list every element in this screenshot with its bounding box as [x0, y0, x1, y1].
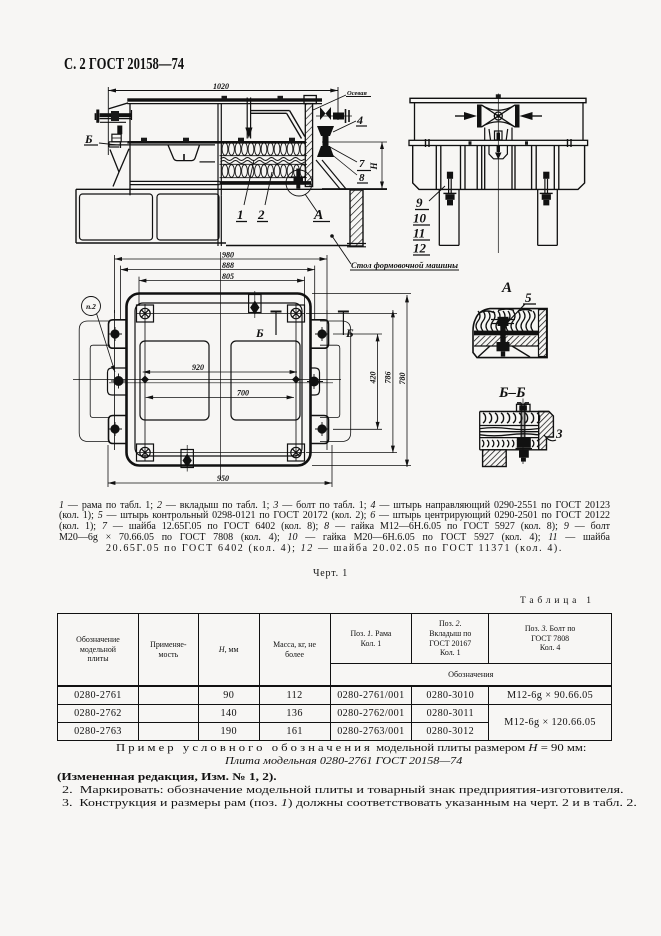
svg-text:950: 950: [217, 474, 229, 483]
svg-text:10: 10: [413, 211, 427, 226]
svg-text:Осевая: Осевая: [347, 90, 367, 97]
svg-text:1020: 1020: [213, 82, 229, 91]
svg-text:Б: Б: [84, 132, 93, 146]
svg-text:786: 786: [384, 372, 393, 384]
svg-text:700: 700: [237, 389, 249, 398]
svg-text:420: 420: [369, 372, 378, 385]
svg-text:1: 1: [237, 207, 244, 222]
svg-text:п.2: п.2: [86, 302, 96, 311]
svg-text:11: 11: [413, 226, 425, 241]
svg-text:Н: Н: [369, 162, 379, 171]
svg-text:7: 7: [359, 158, 365, 170]
svg-text:Стол формовочной машины: Стол формовочной машины: [351, 261, 458, 270]
svg-text:780: 780: [398, 373, 407, 385]
svg-text:9: 9: [416, 195, 423, 210]
svg-text:888: 888: [222, 261, 234, 270]
svg-text:12: 12: [413, 241, 427, 256]
svg-text:Б: Б: [255, 326, 264, 340]
svg-text:8: 8: [359, 172, 365, 184]
svg-text:920: 920: [192, 363, 204, 372]
svg-text:2: 2: [257, 207, 265, 222]
svg-text:А: А: [501, 280, 512, 296]
svg-text:3: 3: [555, 426, 563, 441]
svg-text:Б–Б: Б–Б: [498, 385, 526, 401]
svg-text:Б: Б: [345, 326, 354, 340]
svg-text:4: 4: [356, 113, 363, 127]
svg-text:980: 980: [222, 251, 234, 260]
svg-text:А: А: [313, 208, 323, 223]
svg-text:805: 805: [222, 272, 234, 281]
svg-text:5: 5: [525, 290, 532, 305]
